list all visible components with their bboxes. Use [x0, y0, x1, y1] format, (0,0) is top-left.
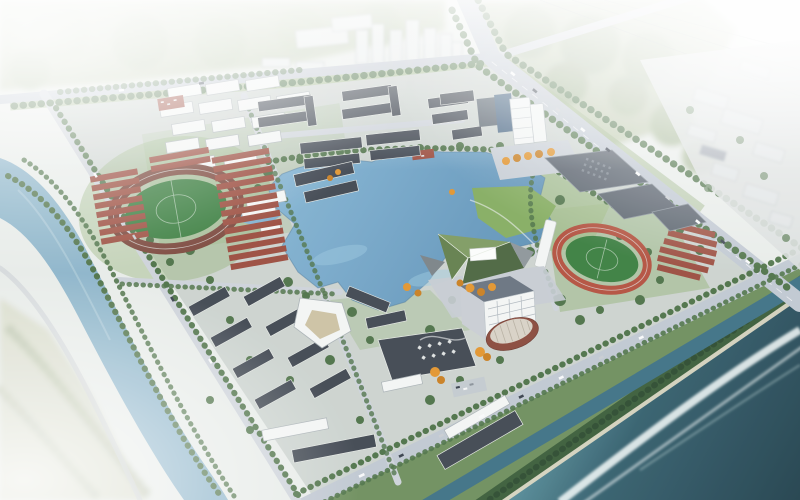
rendering-canvas [0, 0, 800, 500]
global-veil [0, 0, 800, 500]
aerial-campus-rendering [0, 0, 800, 500]
